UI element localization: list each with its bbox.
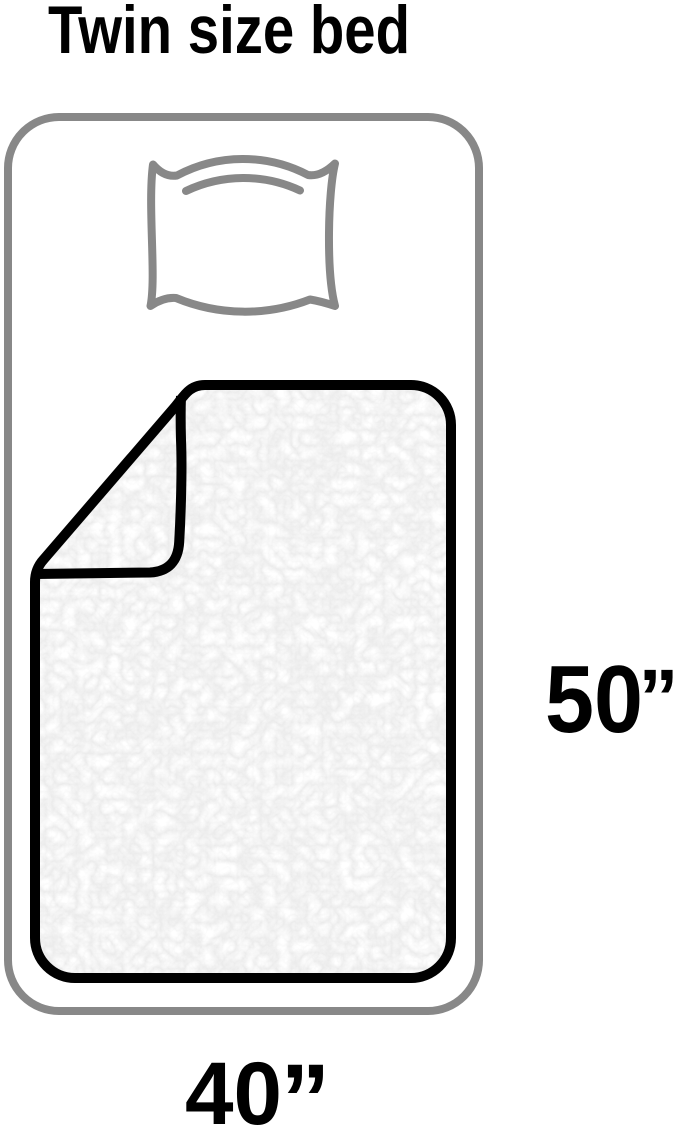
- svg-text:Twin size bed: Twin size bed: [48, 0, 410, 68]
- svg-text:”: ”: [639, 653, 679, 742]
- svg-text:50: 50: [545, 646, 643, 753]
- svg-text:”: ”: [280, 1044, 330, 1128]
- svg-text:40: 40: [185, 1043, 282, 1128]
